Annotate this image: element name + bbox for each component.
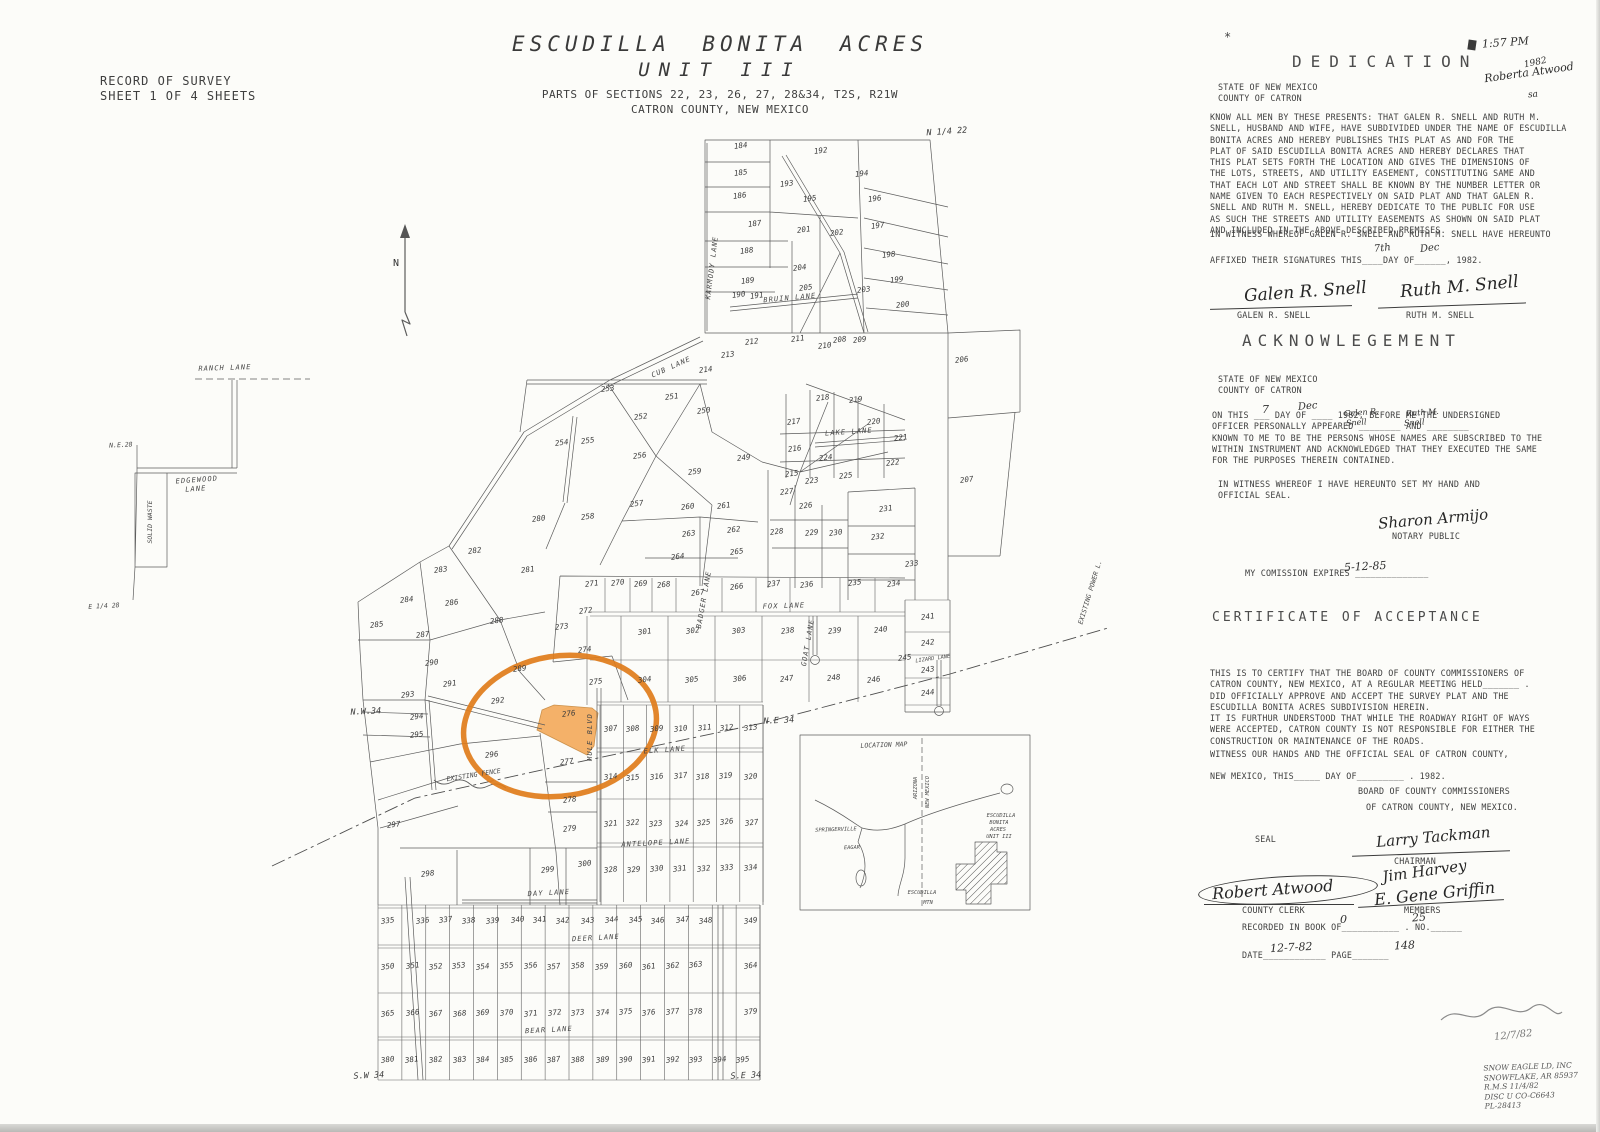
svg-text:303: 303 <box>730 625 746 636</box>
svg-text:304: 304 <box>636 674 652 685</box>
svg-text:199: 199 <box>889 274 904 285</box>
svg-text:248: 248 <box>826 672 841 683</box>
svg-text:243: 243 <box>920 664 935 675</box>
svg-text:289: 289 <box>512 663 527 674</box>
ack-body: ON THIS ___ DAY OF ____ 1982, BEFORE ME … <box>1212 410 1587 466</box>
svg-text:239: 239 <box>827 625 842 636</box>
svg-text:223: 223 <box>804 475 819 486</box>
corner-note-block: SNOW EAGLE LD, INC SNOWFLAKE, AR 85937 R… <box>1483 1060 1579 1111</box>
svg-text:295: 295 <box>409 729 424 740</box>
svg-text:210: 210 <box>817 340 832 351</box>
svg-text:224: 224 <box>818 452 833 463</box>
svg-text:237: 237 <box>766 578 781 589</box>
svg-text:378: 378 <box>687 1006 703 1017</box>
svg-text:272: 272 <box>578 605 593 616</box>
ack-county: COUNTY OF CATRON <box>1218 385 1302 396</box>
svg-text:211: 211 <box>790 333 805 344</box>
svg-text:270: 270 <box>610 577 625 588</box>
svg-text:259: 259 <box>687 466 702 477</box>
svg-text:187: 187 <box>747 218 762 229</box>
svg-text:290: 290 <box>424 657 439 668</box>
svg-text:265: 265 <box>729 546 744 557</box>
svg-text:354: 354 <box>474 961 490 972</box>
svg-text:227: 227 <box>779 486 794 497</box>
svg-text:231: 231 <box>878 503 893 514</box>
svg-text:192: 192 <box>813 145 828 156</box>
svg-text:EAGAR: EAGAR <box>844 845 860 852</box>
svg-text:348: 348 <box>697 915 713 926</box>
dedication-heading: DEDICATION <box>1292 52 1478 71</box>
svg-text:296: 296 <box>484 749 499 760</box>
svg-text:200: 200 <box>895 299 910 310</box>
svg-text:301: 301 <box>636 626 652 637</box>
svg-text:326: 326 <box>718 816 734 827</box>
certificate-heading: CERTIFICATE OF ACCEPTANCE <box>1212 610 1483 625</box>
svg-text:195: 195 <box>802 193 817 204</box>
svg-text:310: 310 <box>672 723 688 734</box>
galen-typed-name: GALEN R. SNELL <box>1237 310 1310 321</box>
svg-text:336: 336 <box>414 915 430 926</box>
svg-text:345: 345 <box>627 914 643 925</box>
svg-text:LANE: LANE <box>185 484 207 493</box>
svg-text:186: 186 <box>732 190 747 201</box>
svg-text:N.E 34: N.E 34 <box>762 715 794 727</box>
svg-text:268: 268 <box>656 579 671 590</box>
svg-text:329: 329 <box>625 864 641 875</box>
svg-text:372: 372 <box>546 1007 562 1018</box>
svg-text:376: 376 <box>640 1007 656 1018</box>
svg-text:307: 307 <box>602 723 618 734</box>
power-line <box>272 628 1108 866</box>
svg-text:389: 389 <box>594 1054 610 1065</box>
svg-text:286: 286 <box>444 597 459 608</box>
recorded-book-line: RECORDED IN BOOK OF___________ . NO.____… <box>1242 922 1462 933</box>
notary-signature: Sharon Armijo <box>1377 505 1488 533</box>
svg-text:215: 215 <box>784 468 799 479</box>
svg-text:299: 299 <box>540 864 555 875</box>
svg-text:263: 263 <box>681 528 696 539</box>
commission-line: MY COMISSION EXPIRES ______________ <box>1245 568 1428 579</box>
svg-text:395: 395 <box>734 1054 750 1065</box>
svg-text:229: 229 <box>804 527 819 538</box>
title-block: ESCUDILLA BONITA ACRES UNIT III PARTS OF… <box>470 32 970 116</box>
svg-text:362: 362 <box>664 960 680 971</box>
certificate-body: THIS IS TO CERTIFY THAT THE BOARD OF COU… <box>1210 668 1590 747</box>
svg-text:LAKE LANE: LAKE LANE <box>825 426 873 437</box>
svg-text:188: 188 <box>739 245 754 256</box>
svg-text:242: 242 <box>920 637 935 648</box>
svg-text:233: 233 <box>904 558 919 569</box>
clerk-typed: COUNTY CLERK <box>1242 905 1305 916</box>
svg-text:359: 359 <box>593 961 609 972</box>
svg-text:323: 323 <box>647 818 663 829</box>
svg-text:343: 343 <box>579 915 595 926</box>
page-subtitle-unit: UNIT III <box>470 59 970 81</box>
svg-text:352: 352 <box>427 961 443 972</box>
signature-line <box>1378 301 1526 308</box>
svg-text:380: 380 <box>379 1054 395 1065</box>
svg-text:330: 330 <box>648 863 664 874</box>
svg-text:EDGEWOOD: EDGEWOOD <box>175 475 218 486</box>
sheet-info: RECORD OF SURVEY SHEET 1 OF 4 SHEETS <box>100 74 256 104</box>
svg-text:381: 381 <box>403 1054 419 1065</box>
svg-text:274: 274 <box>577 644 592 655</box>
svg-text:UNIT III: UNIT III <box>986 834 1012 840</box>
dedication-affixed-line: AFFIXED THEIR SIGNATURES THIS____DAY OF_… <box>1210 255 1585 266</box>
svg-text:383: 383 <box>451 1054 467 1065</box>
svg-text:262: 262 <box>726 524 741 535</box>
svg-text:298: 298 <box>420 868 435 879</box>
svg-text:ESCUDILLA: ESCUDILLA <box>987 813 1016 819</box>
svg-text:324: 324 <box>673 818 689 829</box>
notary-typed: NOTARY PUBLIC <box>1392 531 1460 542</box>
svg-text:361: 361 <box>640 961 656 972</box>
svg-text:346: 346 <box>649 915 665 926</box>
svg-text:S.E 34: S.E 34 <box>730 1070 761 1082</box>
ack-witness: IN WITNESS WHEREOF I HAVE HEREUNTO SET M… <box>1218 479 1578 502</box>
map-labels: 1841921851931941861951961872012021971881… <box>88 126 1104 1082</box>
svg-text:203: 203 <box>856 284 871 295</box>
page-title: ESCUDILLA BONITA ACRES <box>470 32 970 56</box>
svg-text:BADGER LANE: BADGER LANE <box>695 570 713 629</box>
svg-text:238: 238 <box>780 625 795 636</box>
svg-text:367: 367 <box>427 1008 443 1019</box>
svg-text:KARMODY LANE: KARMODY LANE <box>704 236 720 301</box>
ack-name1-bottom: Snell <box>1346 417 1367 427</box>
asterisk-mark: * <box>1224 30 1231 44</box>
svg-text:206: 206 <box>954 354 969 365</box>
svg-text:228: 228 <box>769 526 784 537</box>
svg-text:320: 320 <box>742 771 758 782</box>
lot-grid-lines <box>378 578 950 1080</box>
svg-text:325: 325 <box>695 817 711 828</box>
svg-text:216: 216 <box>787 443 802 454</box>
svg-text:LOCATION MAP: LOCATION MAP <box>860 740 907 750</box>
plat-map: 1841921851931941861951961872012021971881… <box>55 120 1115 1095</box>
svg-text:MULE BLVD: MULE BLVD <box>586 713 594 762</box>
svg-text:314: 314 <box>602 771 618 782</box>
dedication-witness: IN WITNESS WHEREOF GALEN R. SNELL AND RU… <box>1210 229 1585 240</box>
svg-text:266: 266 <box>729 581 744 592</box>
svg-text:CUB LANE: CUB LANE <box>650 355 692 380</box>
svg-text:328: 328 <box>602 864 618 875</box>
board-line2: OF CATRON COUNTY, NEW MEXICO. <box>1366 802 1518 813</box>
survey-plat-page: RECORD OF SURVEY SHEET 1 OF 4 SHEETS ESC… <box>0 0 1600 1132</box>
svg-text:344: 344 <box>603 914 619 925</box>
svg-text:256: 256 <box>632 450 647 461</box>
svg-text:212: 212 <box>744 336 759 347</box>
svg-text:RANCH LANE: RANCH LANE <box>198 363 251 373</box>
svg-text:358: 358 <box>569 960 585 971</box>
svg-text:252: 252 <box>633 411 648 422</box>
svg-text:232: 232 <box>870 531 885 542</box>
svg-text:377: 377 <box>664 1006 680 1017</box>
svg-text:271: 271 <box>584 578 599 589</box>
svg-text:235: 235 <box>847 577 862 588</box>
svg-text:341: 341 <box>531 914 547 925</box>
svg-text:287: 287 <box>415 629 430 640</box>
dedication-body: KNOW ALL MEN BY THESE PRESENTS: THAT GAL… <box>1210 112 1585 236</box>
date-line: DATE____________ PAGE_______ <box>1242 950 1389 961</box>
commission-date-handwritten: 5-12-85 <box>1344 559 1387 574</box>
svg-text:334: 334 <box>742 862 758 873</box>
ack-name2-bottom: Snell <box>1404 417 1425 427</box>
svg-text:331: 331 <box>671 863 687 874</box>
svg-text:277: 277 <box>559 756 574 767</box>
svg-text:MTN: MTN <box>922 900 933 906</box>
certificate-witness2: NEW MEXICO, THIS_____ DAY OF_________ . … <box>1210 771 1590 782</box>
svg-text:DAY LANE: DAY LANE <box>526 888 570 898</box>
svg-text:278: 278 <box>562 794 577 805</box>
page-handwritten: 148 <box>1394 938 1416 952</box>
corner-date: 12/7/82 <box>1494 1028 1534 1043</box>
stamp-time: 1:57 PM <box>1482 34 1530 50</box>
svg-text:297: 297 <box>386 819 401 830</box>
svg-text:207: 207 <box>959 474 974 485</box>
svg-text:184: 184 <box>733 140 748 151</box>
svg-text:373: 373 <box>569 1007 585 1018</box>
dedication-day-handwritten: 7th <box>1373 242 1391 255</box>
svg-text:251: 251 <box>664 391 679 402</box>
svg-text:197: 197 <box>870 220 885 231</box>
svg-text:ARIZONA: ARIZONA <box>913 777 919 800</box>
svg-text:201: 201 <box>796 224 811 235</box>
svg-text:337: 337 <box>437 914 453 925</box>
svg-text:GOAT LANE: GOAT LANE <box>800 618 816 667</box>
svg-text:276: 276 <box>561 708 576 719</box>
svg-text:339: 339 <box>484 915 500 926</box>
svg-text:191: 191 <box>749 290 764 301</box>
svg-text:249: 249 <box>736 452 751 463</box>
svg-text:319: 319 <box>717 770 733 781</box>
svg-text:226: 226 <box>798 500 813 511</box>
book-handwritten: 0 <box>1340 913 1347 926</box>
sections-line: PARTS OF SECTIONS 22, 23, 26, 27, 28&34,… <box>470 88 970 101</box>
svg-text:375: 375 <box>617 1006 633 1017</box>
svg-text:382: 382 <box>427 1054 443 1065</box>
svg-text:221: 221 <box>893 432 908 443</box>
svg-text:327: 327 <box>743 817 759 828</box>
svg-text:318: 318 <box>694 771 710 782</box>
svg-text:308: 308 <box>624 723 640 734</box>
svg-text:300: 300 <box>576 858 592 869</box>
svg-text:246: 246 <box>866 674 881 685</box>
svg-text:363: 363 <box>687 959 703 970</box>
svg-text:349: 349 <box>742 915 758 926</box>
svg-text:285: 285 <box>369 619 384 630</box>
svg-text:316: 316 <box>648 771 664 782</box>
svg-text:196: 196 <box>867 193 882 204</box>
scan-edge-right <box>1596 0 1600 1132</box>
svg-text:255: 255 <box>580 435 595 446</box>
svg-text:254: 254 <box>554 437 569 448</box>
svg-text:393: 393 <box>687 1054 703 1065</box>
svg-text:DEER LANE: DEER LANE <box>571 933 620 944</box>
ruth-typed-name: RUTH M. SNELL <box>1406 310 1474 321</box>
certificate-witness1: WITNESS OUR HANDS AND THE OFFICIAL SEAL … <box>1210 749 1590 760</box>
svg-text:282: 282 <box>467 545 482 556</box>
ack-state: STATE OF NEW MEXICO <box>1218 374 1318 385</box>
svg-text:218: 218 <box>815 392 830 403</box>
svg-text:394: 394 <box>711 1054 727 1065</box>
signature-line <box>1210 304 1352 310</box>
ack-day-handwritten: 7 <box>1262 403 1269 416</box>
svg-text:ELK LANE: ELK LANE <box>643 745 686 756</box>
chairman-signature: Larry Tackman <box>1375 823 1491 851</box>
stamp-mark <box>1467 39 1476 50</box>
svg-text:347: 347 <box>674 914 690 925</box>
svg-text:309: 309 <box>648 723 664 734</box>
svg-text:N 1/4 22: N 1/4 22 <box>925 126 968 139</box>
svg-text:333: 333 <box>718 862 734 873</box>
svg-text:280: 280 <box>531 513 546 524</box>
svg-text:SPRINGERVILLE: SPRINGERVILLE <box>815 826 857 833</box>
svg-text:360: 360 <box>617 960 633 971</box>
svg-text:247: 247 <box>779 673 794 684</box>
svg-text:390: 390 <box>617 1054 633 1065</box>
svg-text:198: 198 <box>881 249 896 260</box>
svg-text:219: 219 <box>848 394 863 405</box>
svg-text:E 1/4 28: E 1/4 28 <box>88 601 120 611</box>
svg-text:257: 257 <box>629 498 644 509</box>
svg-text:357: 357 <box>545 961 561 972</box>
svg-text:321: 321 <box>602 818 618 829</box>
acknowledgement-heading: ACKNOWLEGEMENT <box>1242 331 1461 350</box>
svg-text:391: 391 <box>640 1054 656 1065</box>
svg-text:368: 368 <box>451 1008 467 1019</box>
svg-text:202: 202 <box>829 227 844 238</box>
svg-text:SOLID WASTE: SOLID WASTE <box>146 500 154 543</box>
svg-text:342: 342 <box>554 915 570 926</box>
svg-text:EXISTING POWER L.: EXISTING POWER L. <box>1077 559 1104 625</box>
svg-text:322: 322 <box>624 817 640 828</box>
board-line1: BOARD OF COUNTY COMMISSIONERS <box>1358 786 1510 797</box>
svg-text:281: 281 <box>520 564 535 575</box>
svg-text:364: 364 <box>742 960 758 971</box>
svg-text:283: 283 <box>433 564 448 575</box>
corner-scrawl <box>1436 1002 1566 1028</box>
svg-text:269: 269 <box>633 578 648 589</box>
ruth-signature: Ruth M. Snell <box>1399 272 1519 302</box>
svg-text:204: 204 <box>792 262 807 273</box>
svg-text:366: 366 <box>404 1007 420 1018</box>
svg-text:312: 312 <box>718 722 734 733</box>
svg-text:350: 350 <box>379 961 395 972</box>
dedication-month-handwritten: Dec <box>1419 242 1440 255</box>
svg-text:288: 288 <box>489 615 504 626</box>
svg-text:279: 279 <box>562 823 577 834</box>
svg-text:N: N <box>393 258 399 269</box>
svg-text:214: 214 <box>698 364 713 375</box>
svg-text:BRUIN LANE: BRUIN LANE <box>763 292 817 305</box>
svg-text:244: 244 <box>920 687 935 698</box>
svg-text:315: 315 <box>624 772 640 783</box>
book-no-handwritten: 25 <box>1412 911 1427 925</box>
svg-text:356: 356 <box>522 960 538 971</box>
svg-text:275: 275 <box>588 676 603 687</box>
svg-text:332: 332 <box>695 863 711 874</box>
svg-text:258: 258 <box>580 511 595 522</box>
svg-text:185: 185 <box>733 167 748 178</box>
svg-text:386: 386 <box>522 1054 538 1065</box>
svg-text:317: 317 <box>672 770 688 781</box>
svg-text:284: 284 <box>399 594 414 605</box>
svg-text:190: 190 <box>731 289 746 300</box>
county-line: CATRON COUNTY, NEW MEXICO <box>470 103 970 116</box>
svg-text:241: 241 <box>920 611 935 622</box>
svg-text:392: 392 <box>664 1054 680 1065</box>
svg-text:213: 213 <box>720 349 735 360</box>
svg-text:208: 208 <box>832 334 847 345</box>
svg-text:261: 261 <box>716 500 731 511</box>
svg-text:365: 365 <box>379 1008 395 1019</box>
svg-text:340: 340 <box>509 914 525 925</box>
svg-text:ACRES: ACRES <box>989 827 1006 833</box>
svg-text:222: 222 <box>885 457 900 468</box>
svg-text:292: 292 <box>490 695 505 706</box>
svg-text:293: 293 <box>400 689 415 700</box>
svg-text:230: 230 <box>828 527 843 538</box>
svg-text:225: 225 <box>838 470 853 481</box>
svg-text:384: 384 <box>474 1054 490 1065</box>
svg-text:353: 353 <box>450 960 466 971</box>
svg-text:273: 273 <box>554 621 569 632</box>
svg-text:335: 335 <box>379 915 395 926</box>
svg-text:385: 385 <box>498 1054 514 1065</box>
svg-text:260: 260 <box>680 501 695 512</box>
dedication-county: COUNTY OF CATRON <box>1218 93 1302 104</box>
svg-text:291: 291 <box>442 678 457 689</box>
svg-text:189: 189 <box>740 275 755 286</box>
svg-text:379: 379 <box>742 1006 758 1017</box>
svg-text:371: 371 <box>522 1008 538 1019</box>
svg-text:S.W 34: S.W 34 <box>353 1070 384 1082</box>
svg-text:209: 209 <box>852 334 867 345</box>
record-date-handwritten: 12-7-82 <box>1270 940 1313 955</box>
svg-text:240: 240 <box>873 624 888 635</box>
svg-text:BONITA: BONITA <box>989 820 1008 826</box>
svg-text:217: 217 <box>786 416 801 427</box>
svg-text:294: 294 <box>409 711 424 722</box>
svg-text:338: 338 <box>460 915 476 926</box>
svg-text:FOX LANE: FOX LANE <box>763 601 806 610</box>
svg-text:313: 313 <box>742 722 758 733</box>
svg-text:374: 374 <box>594 1007 610 1018</box>
svg-text:387: 387 <box>545 1054 561 1065</box>
svg-text:220: 220 <box>866 416 881 427</box>
svg-text:245: 245 <box>897 652 912 663</box>
ack-month-handwritten: Dec <box>1298 400 1318 413</box>
svg-text:351: 351 <box>404 960 420 971</box>
svg-text:BEAR LANE: BEAR LANE <box>525 1025 573 1035</box>
svg-text:NEW MEXICO: NEW MEXICO <box>925 776 931 809</box>
svg-text:193: 193 <box>779 178 794 189</box>
svg-text:305: 305 <box>683 674 699 685</box>
svg-text:194: 194 <box>854 168 869 179</box>
svg-text:355: 355 <box>498 960 514 971</box>
svg-text:N.E.28: N.E.28 <box>108 440 133 449</box>
scan-edge-bottom <box>0 1124 1600 1132</box>
svg-text:388: 388 <box>569 1054 585 1065</box>
dedication-state: STATE OF NEW MEXICO <box>1218 82 1318 93</box>
galen-signature: Galen R. Snell <box>1243 278 1367 307</box>
seal-label: SEAL <box>1255 834 1276 845</box>
svg-text:311: 311 <box>696 722 712 733</box>
svg-text:236: 236 <box>799 579 814 590</box>
svg-text:253: 253 <box>600 383 615 394</box>
svg-text:N.W.34: N.W.34 <box>349 706 381 718</box>
svg-text:250: 250 <box>696 405 711 416</box>
